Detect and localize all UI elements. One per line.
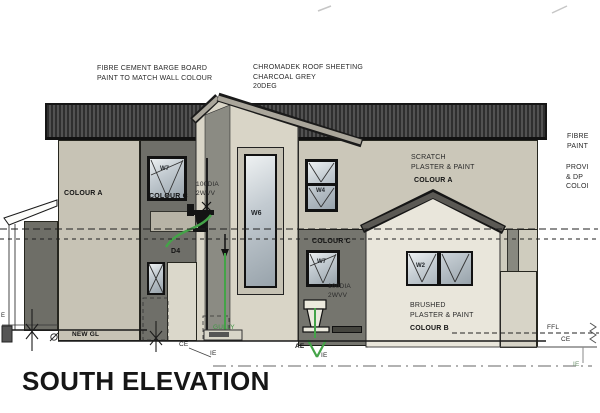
window-w7-right-label: W7 [317, 259, 326, 265]
survey-marker-mid [150, 321, 162, 352]
note-edge-dp: PROVI & DP COLOI [566, 163, 589, 192]
label-colour-b: COLOUR B [410, 324, 449, 334]
label-edge-mark: E [1, 312, 5, 322]
note-edge-fibre-paint: FIBRE PAINT [567, 132, 589, 151]
note-scratch-plaster: SCRATCH PLASTER & PAINT [411, 153, 475, 172]
lean-to-roof [4, 200, 57, 225]
label-ce-right: CE [561, 336, 570, 345]
label-ffl: FFL [547, 324, 559, 333]
label-ae: AE [295, 343, 304, 352]
window-w4-label: W4 [316, 188, 325, 194]
south-elevation-drawing: W7 W6 W4 W7 W2 [0, 0, 600, 413]
note-roof-sheeting: CHROMADEK ROOF SHEETING CHARCOAL GREY 20… [253, 63, 363, 92]
note-brushed-plaster: BRUSHED PLASTER & PAINT [410, 301, 474, 320]
label-colour-c-left: COLOUR C [149, 192, 188, 202]
label-gully: GULLY [213, 324, 235, 333]
label-ce-left: CE [179, 341, 188, 350]
note-vent-right: 100DIA 2WVV [328, 283, 351, 300]
label-ie-right: IE [573, 361, 580, 370]
label-ie-mid: IE [321, 352, 328, 361]
label-new-gl: NEW GL [72, 331, 99, 340]
window-w7-left-label: W7 [160, 166, 169, 172]
note-barge-board: FIBRE CEMENT BARGE BOARD PAINT TO MATCH … [97, 64, 212, 83]
note-vent-left: 100DIA 2WVV [196, 181, 219, 198]
label-d4: D4 [171, 247, 180, 257]
edge-pier [2, 326, 12, 342]
window-w2-label: W2 [416, 263, 425, 269]
window-w6-label: W6 [251, 210, 262, 217]
label-colour-c-right: COLOUR C [312, 237, 351, 247]
label-colour-a: COLOUR A [64, 189, 103, 199]
drawing-title: SOUTH ELEVATION [22, 366, 270, 397]
label-ie-left: IE [210, 350, 217, 359]
label-scratch-colour-a: COLOUR A [414, 176, 453, 186]
